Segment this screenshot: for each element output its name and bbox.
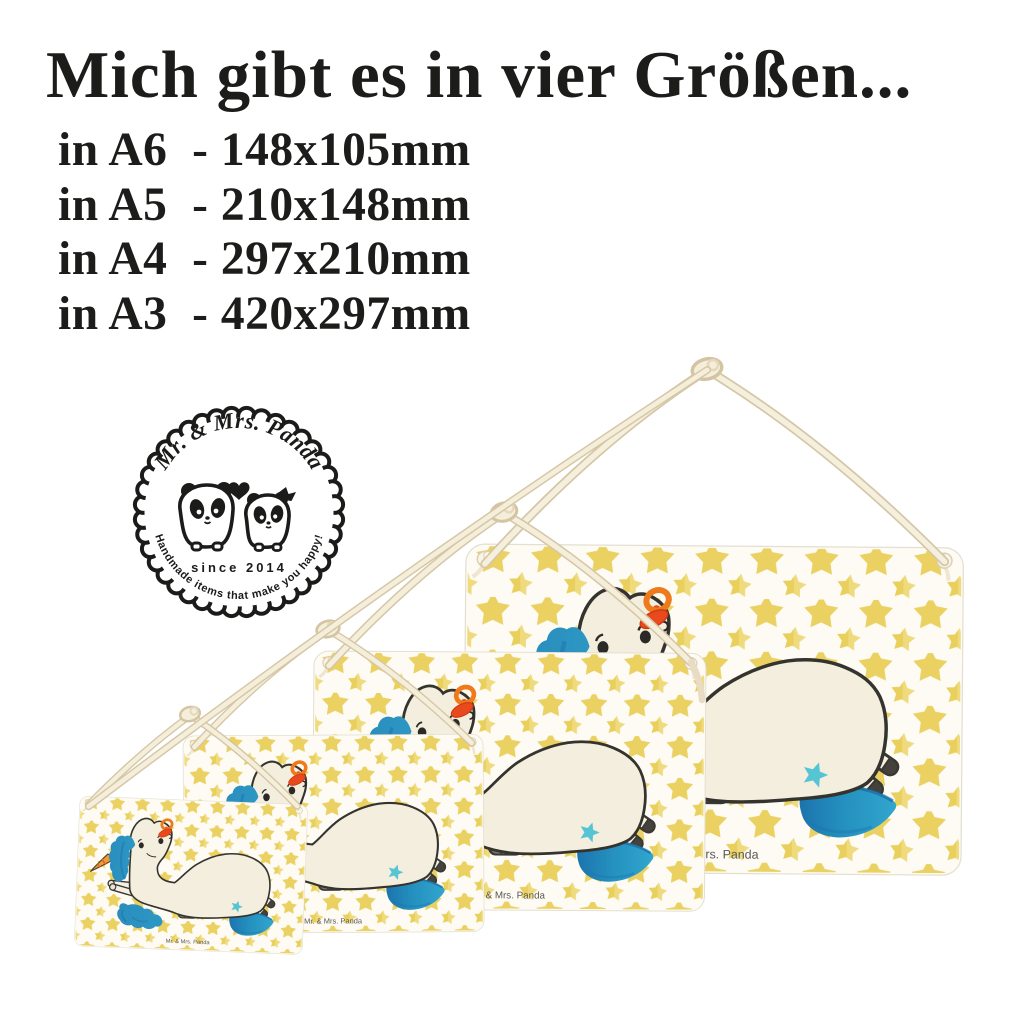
svg-text:since 2014: since 2014	[191, 560, 287, 575]
